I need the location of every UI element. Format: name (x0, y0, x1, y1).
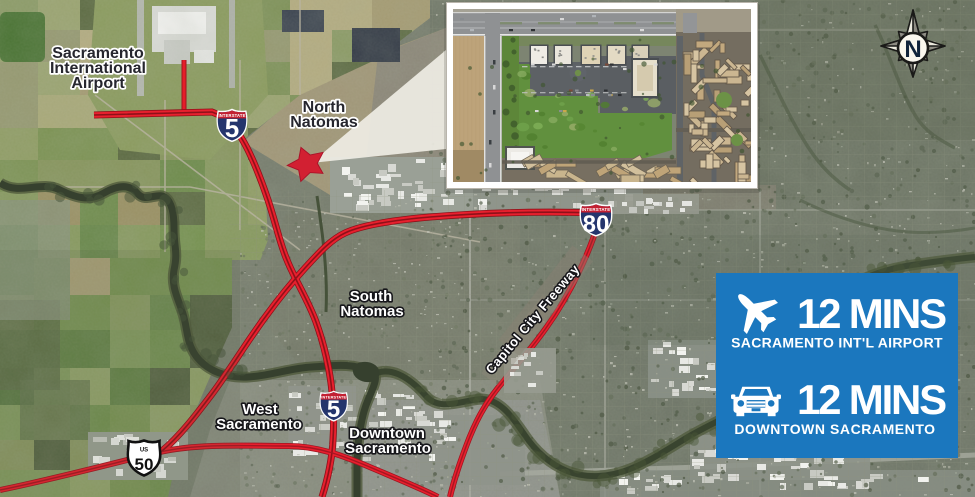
svg-text:Airport: Airport (71, 75, 125, 92)
svg-text:US: US (140, 448, 148, 454)
svg-text:Natomas: Natomas (340, 303, 403, 320)
svg-text:N: N (904, 36, 921, 63)
svg-text:80: 80 (583, 211, 610, 238)
svg-text:DOWNTOWN SACRAMENTO: DOWNTOWN SACRAMENTO (734, 421, 935, 437)
svg-text:5: 5 (327, 396, 340, 423)
svg-text:Sacramento: Sacramento (345, 440, 431, 457)
svg-text:12 MINS: 12 MINS (797, 290, 946, 337)
svg-text:SACRAMENTO INT'L AIRPORT: SACRAMENTO INT'L AIRPORT (731, 335, 943, 351)
svg-text:5: 5 (225, 113, 239, 143)
svg-text:Natomas: Natomas (290, 114, 358, 131)
svg-text:50: 50 (135, 455, 154, 474)
svg-text:Sacramento: Sacramento (216, 416, 302, 433)
svg-text:12 MINS: 12 MINS (797, 376, 946, 423)
